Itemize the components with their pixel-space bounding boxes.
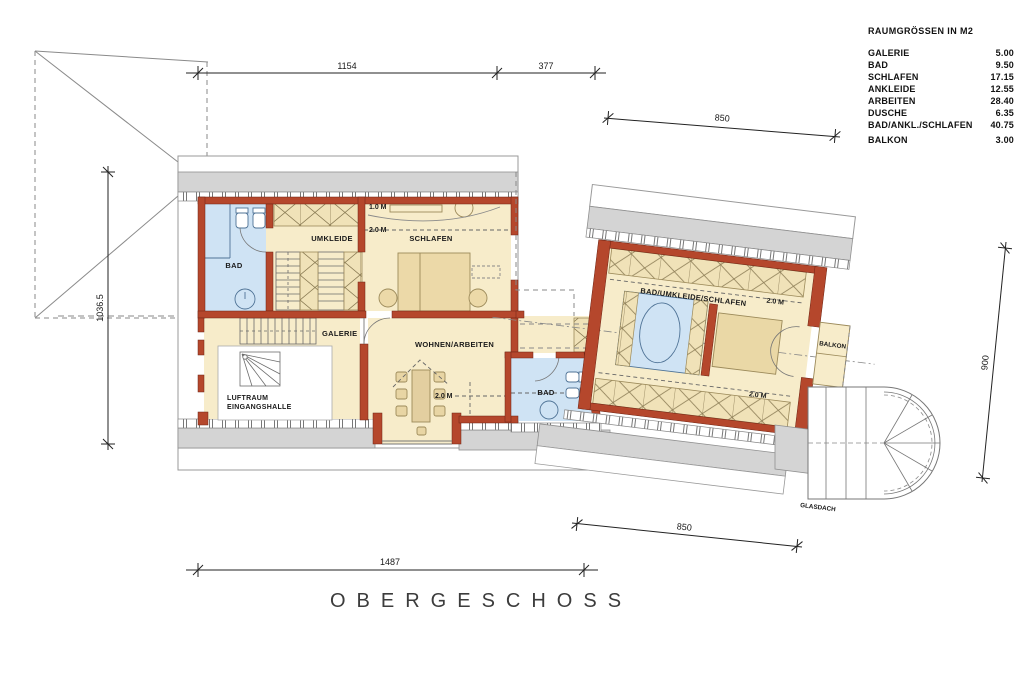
mark-schlafen-10: 1.0 M	[369, 204, 387, 211]
legend-row: SCHLAFEN17.15	[868, 71, 1014, 83]
room-label-luftraum-1: LUFTRAUM	[227, 395, 268, 402]
legend-row: GALERIE5.00	[868, 47, 1014, 59]
closet-umkleide	[274, 202, 360, 226]
dimension-top-right: 850	[714, 112, 730, 123]
dimension-top-mid: 377	[538, 61, 553, 71]
legend-row: BAD/ANKL./SCHLAFEN40.75	[868, 119, 1014, 131]
dimension-bottom: 1487	[380, 557, 400, 567]
room-label-luftraum-2: EINGANGSHALLE	[227, 404, 292, 411]
room-sizes-legend: RAUMGRÖSSEN IN M2 GALERIE5.00 BAD9.50 SC…	[868, 26, 1014, 146]
sheet-title: OBERGESCHOSS	[330, 590, 632, 613]
legend-title: RAUMGRÖSSEN IN M2	[868, 26, 1014, 36]
balcony: BALKON	[813, 322, 850, 387]
room-label-schlafen: SCHLAFEN	[409, 234, 452, 243]
dimension-bottom-right: 850	[676, 521, 692, 533]
legend-row: ARBEITEN28.40	[868, 95, 1014, 107]
roof-band-bottom-left	[178, 428, 375, 448]
room-label-galerie: GALERIE	[322, 329, 357, 338]
dimension-top-left: 1154	[337, 61, 356, 71]
room-label-wohnen: WOHNEN/ARBEITEN	[415, 340, 494, 349]
legend-row: DUSCHE6.35	[868, 107, 1014, 119]
dimension-right: 900	[979, 355, 990, 371]
bathtub	[616, 291, 708, 375]
floor-wohnen	[368, 318, 511, 419]
roof-band-top	[178, 172, 518, 192]
legend-row: ANKLEIDE12.55	[868, 83, 1014, 95]
mark-wohnen-20: 2.0 M	[435, 393, 453, 400]
left-wing	[178, 156, 610, 470]
room-label-umkleide: UMKLEIDE	[311, 234, 353, 243]
floorplan-sheet: BALKON BAD/UMKLEIDE/SCHLAFEN 2.0 M 2.0 M…	[0, 0, 1024, 684]
room-label-glasdach: GLASDACH	[800, 502, 837, 513]
room-label-bad1: BAD	[225, 261, 242, 270]
legend-row: BAD9.50	[868, 59, 1014, 71]
dimension-left: 1036.5	[95, 294, 105, 322]
mark-schlafen-20: 2.0 M	[369, 227, 387, 234]
legend-row: BALKON3.00	[868, 134, 1014, 146]
room-label-bad2: BAD	[537, 388, 554, 397]
